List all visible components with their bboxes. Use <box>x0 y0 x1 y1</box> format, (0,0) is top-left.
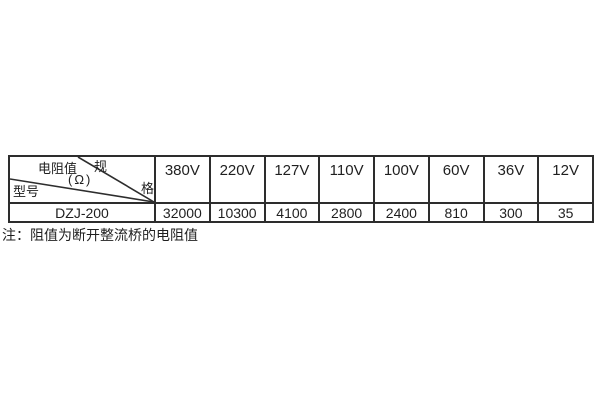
value-100v: 2400 <box>373 202 428 221</box>
value-380v: 32000 <box>154 202 209 221</box>
value-12v: 35 <box>537 202 592 221</box>
col-header-110v: 110V <box>318 157 373 202</box>
corner-label-model: 型号 <box>13 185 39 198</box>
value-127v: 4100 <box>264 202 319 221</box>
col-header-380v: 380V <box>154 157 209 202</box>
corner-label-spec-top: 规 <box>94 160 107 173</box>
value-60v: 810 <box>428 202 483 221</box>
col-header-100v: 100V <box>373 157 428 202</box>
corner-label-spec-bottom: 格 <box>141 182 154 195</box>
corner-header-cell: 规 格 电阻值 (Ω) 型号 <box>10 157 154 202</box>
col-header-220v: 220V <box>209 157 264 202</box>
col-header-60v: 60V <box>428 157 483 202</box>
corner-label-ohm-unit: (Ω) <box>68 173 92 186</box>
value-220v: 10300 <box>209 202 264 221</box>
value-36v: 300 <box>483 202 538 221</box>
footnote: 注：阻值为断开整流桥的电阻值 <box>2 227 198 243</box>
value-110v: 2800 <box>318 202 373 221</box>
col-header-12v: 12V <box>537 157 592 202</box>
col-header-127v: 127V <box>264 157 319 202</box>
model-cell: DZJ-200 <box>10 202 154 221</box>
col-header-36v: 36V <box>483 157 538 202</box>
spec-table: 规 格 电阻值 (Ω) 型号 380V 220V 127V 110V 100V … <box>8 155 594 223</box>
